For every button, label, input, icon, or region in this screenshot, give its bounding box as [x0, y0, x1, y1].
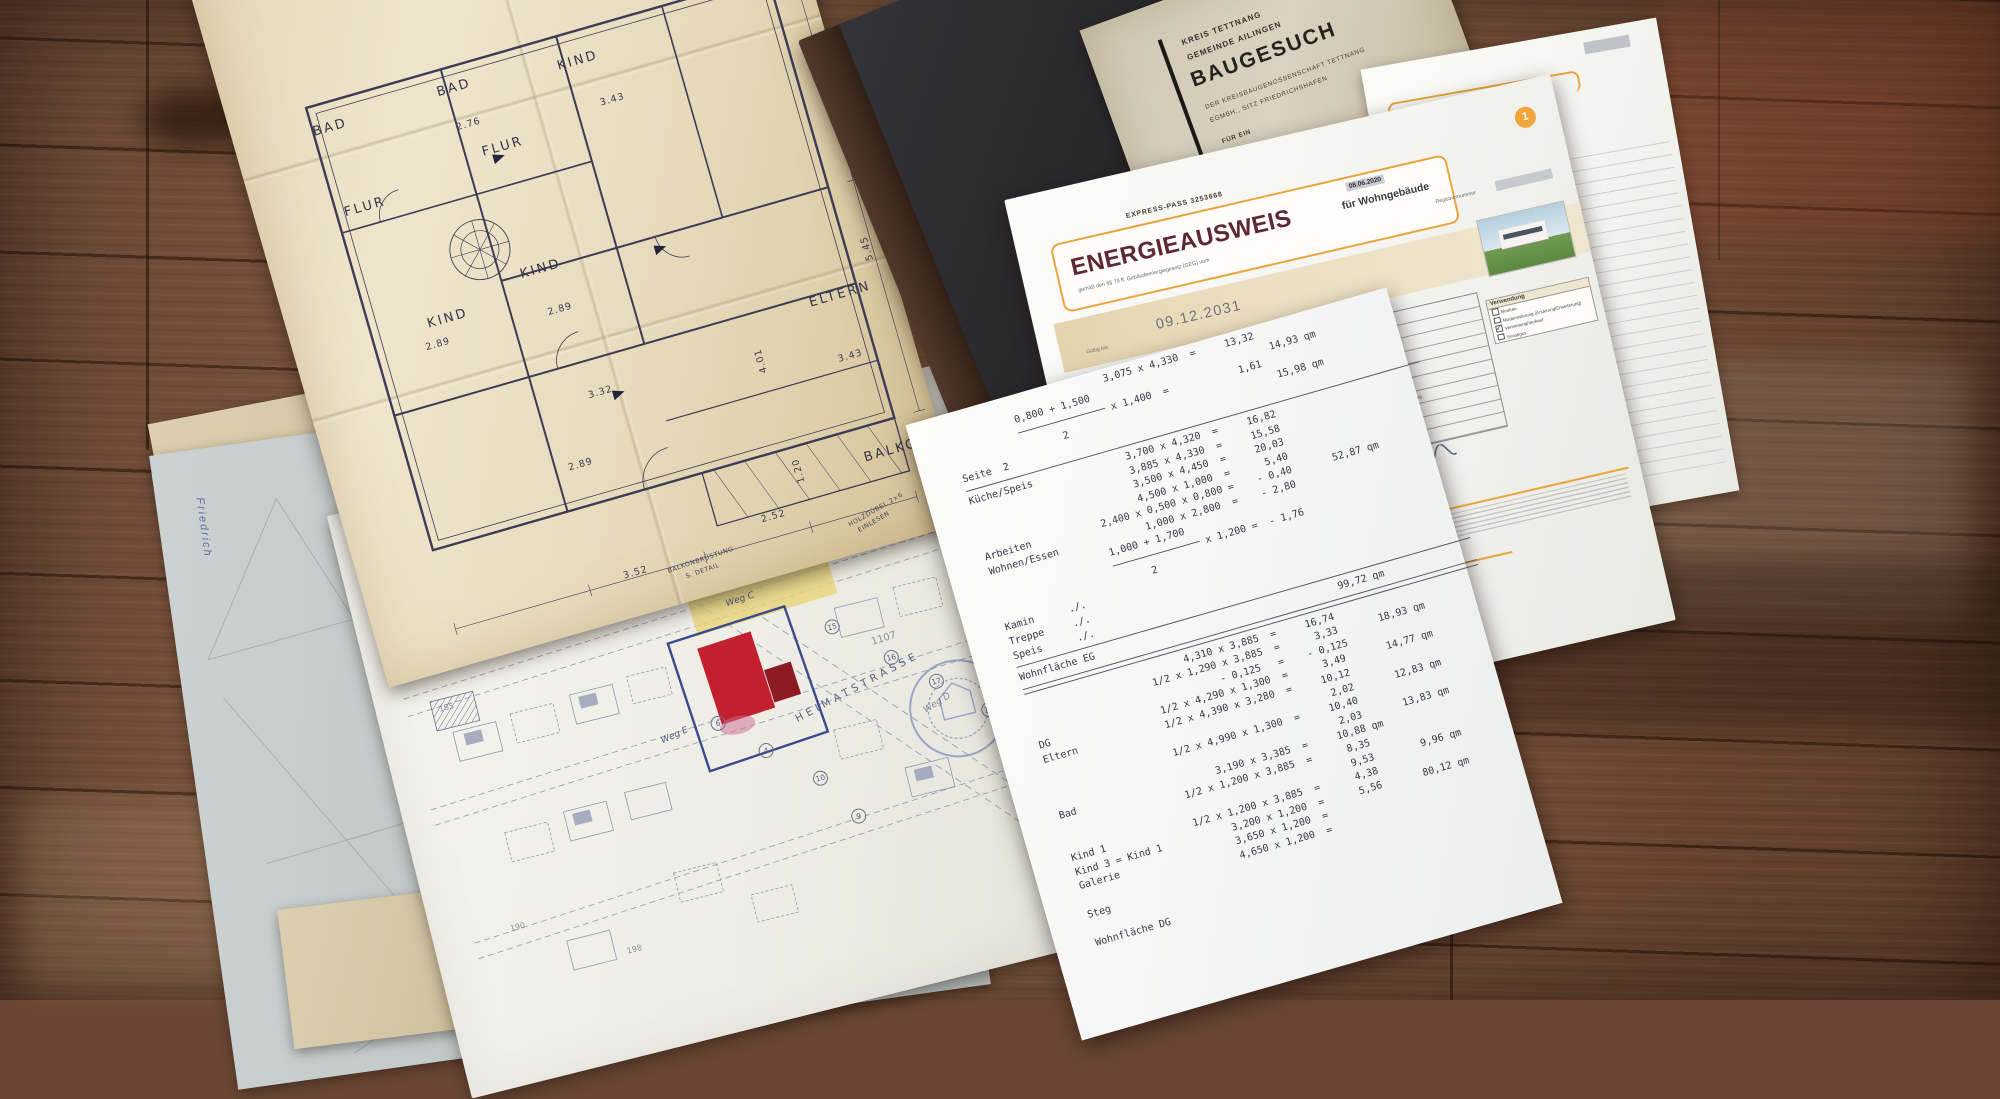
- checkbox-checked: [1495, 325, 1503, 333]
- energieausweis-title: ENERGIEAUSWEIS: [1068, 204, 1294, 282]
- cover-fuer-ein: FÜR EIN: [1221, 128, 1252, 145]
- plank-seam: [1718, 0, 1720, 260]
- valid-until-date: 09.12.2031: [1154, 298, 1243, 333]
- gray-field-box: [1583, 35, 1630, 55]
- wood-red-patch: [1650, 0, 2000, 240]
- registry-number-box: [1495, 168, 1554, 191]
- page-number-badge: 1: [1513, 105, 1538, 130]
- copy-number: 6. FERTIGUNG: [1226, 0, 1288, 2]
- photo-of-building-documents: { "baugesuch": { "kreis": "KREIS TETTNAN…: [0, 0, 2000, 1000]
- house-photo: [1476, 200, 1577, 277]
- hatched-parcel: [430, 691, 480, 731]
- checkbox-empty: [1497, 333, 1505, 341]
- building-red-main: [697, 631, 775, 724]
- plank-seam: [146, 0, 149, 450]
- verwendung-box: Verwendung NeubauModernisierung (Änderun…: [1485, 277, 1598, 345]
- checkbox-empty: [1491, 308, 1499, 316]
- valid-until-label: Gültig bis:: [1086, 344, 1110, 355]
- law-date-box: 08.06.2020: [1345, 174, 1385, 192]
